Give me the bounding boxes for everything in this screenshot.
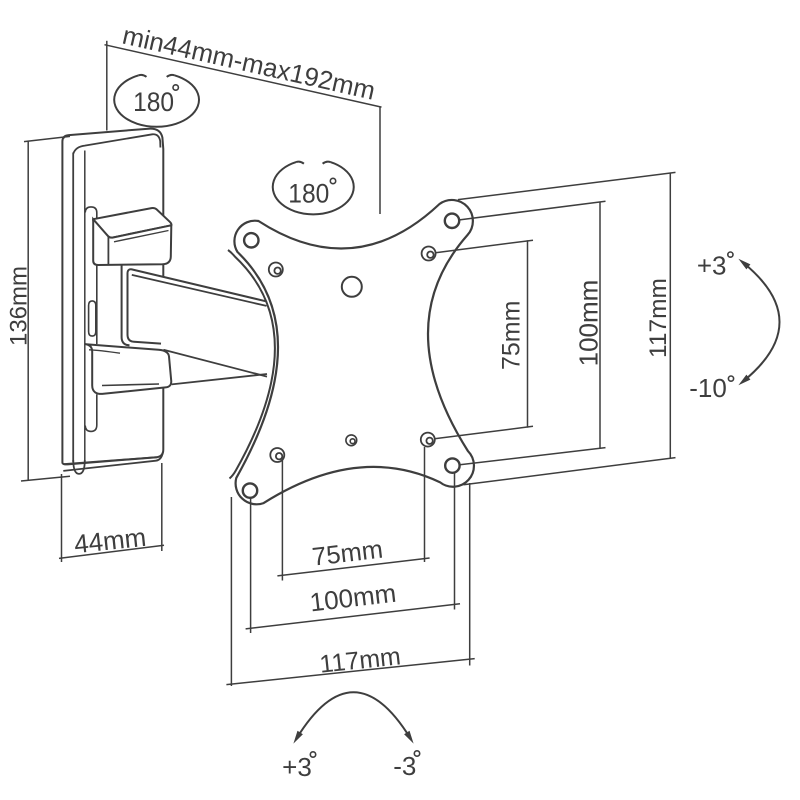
svg-text:136mm: 136mm bbox=[6, 266, 33, 346]
svg-text:180: 180 bbox=[133, 87, 174, 117]
svg-text:-10: -10 bbox=[689, 373, 727, 403]
svg-text:100mm: 100mm bbox=[574, 280, 604, 367]
svg-text:+3: +3 bbox=[282, 752, 312, 782]
svg-text:117mm: 117mm bbox=[645, 278, 672, 358]
svg-text:75mm: 75mm bbox=[498, 301, 526, 370]
svg-text:180: 180 bbox=[288, 179, 329, 209]
svg-text:-3: -3 bbox=[393, 751, 416, 781]
svg-text:+3: +3 bbox=[697, 251, 727, 281]
